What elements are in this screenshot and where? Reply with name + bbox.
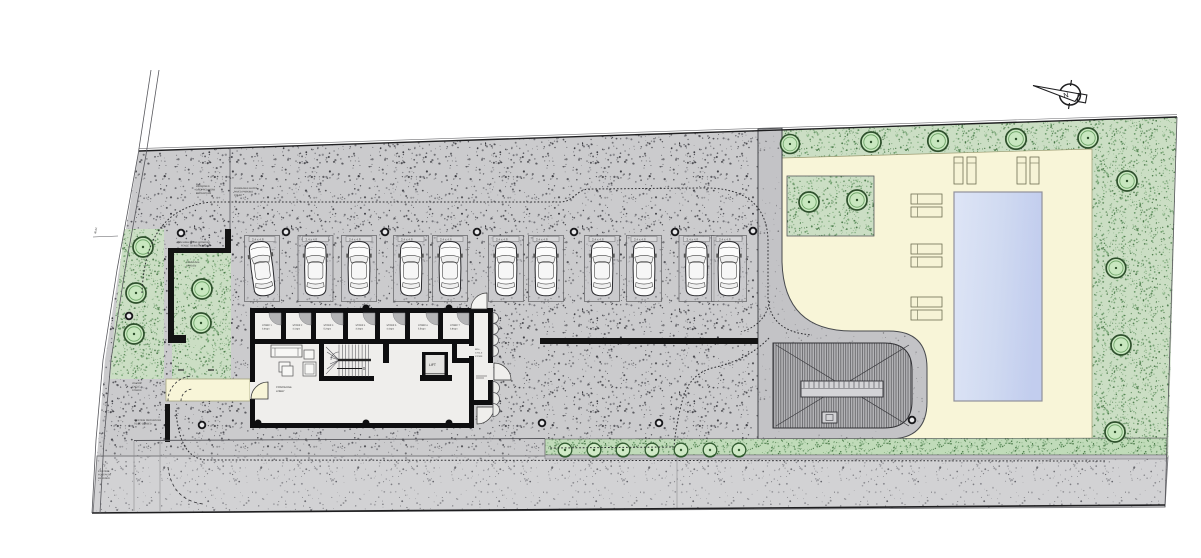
svg-text:3.6sqm: 3.6sqm <box>450 327 458 330</box>
svg-text:STORE: STORE <box>475 355 483 358</box>
svg-text:CONCIERGE: CONCIERGE <box>276 386 292 389</box>
svg-text:RETAINED: RETAINED <box>98 477 110 480</box>
svg-text:2.4 x 4.8: 2.4 x 4.8 <box>536 238 548 242</box>
svg-text:2.4 x 4.8: 2.4 x 4.8 <box>252 238 264 242</box>
svg-text:2.4 x 4.8: 2.4 x 4.8 <box>401 238 413 242</box>
svg-text:2.4 x 4.8: 2.4 x 4.8 <box>496 238 508 242</box>
svg-text:2.4 x 4.8: 2.4 x 4.8 <box>634 238 646 242</box>
svg-text:STORE 7: STORE 7 <box>450 324 461 327</box>
svg-text:GARDEN: GARDEN <box>186 265 197 268</box>
svg-text:COURT: COURT <box>234 194 243 197</box>
svg-text:2.4 x 4.8: 2.4 x 4.8 <box>687 238 699 242</box>
svg-text:5.5sqm: 5.5sqm <box>418 327 426 330</box>
svg-text:2.4 x 4.8: 2.4 x 4.8 <box>719 238 731 242</box>
svg-text:3.3sqm: 3.3sqm <box>356 327 364 330</box>
svg-text:2.4 x 4.8: 2.4 x 4.8 <box>306 238 318 242</box>
svg-text:3.0sqm: 3.0sqm <box>262 327 270 330</box>
svg-text:4.1sqm: 4.1sqm <box>293 327 301 330</box>
svg-text:STORE 5: STORE 5 <box>387 324 398 327</box>
svg-text:STORE 1: STORE 1 <box>262 324 273 327</box>
svg-text:STORE 4: STORE 4 <box>356 324 367 327</box>
svg-text:STORE 6: STORE 6 <box>418 324 429 327</box>
svg-text:2.4 x 4.8: 2.4 x 4.8 <box>440 238 452 242</box>
svg-text:CROSSOVER: CROSSOVER <box>196 192 212 195</box>
svg-text:LIFT: LIFT <box>429 363 436 367</box>
svg-text:STANDS: STANDS <box>132 389 142 392</box>
svg-text:CYCLE: CYCLE <box>475 351 483 354</box>
svg-text:TO BE CLOSED: TO BE CLOSED <box>134 423 152 426</box>
svg-text:LOBBY: LOBBY <box>276 390 285 393</box>
svg-text:BIN +: BIN + <box>475 348 481 351</box>
svg-text:STORE 3: STORE 3 <box>324 324 335 327</box>
svg-text:FENCE TO BOUNDARY: FENCE TO BOUNDARY <box>181 245 208 248</box>
svg-text:5.2sqm: 5.2sqm <box>324 327 332 330</box>
svg-text:2.4 x 4.8: 2.4 x 4.8 <box>349 238 361 242</box>
svg-text:4.4sqm: 4.4sqm <box>387 327 395 330</box>
svg-text:2.4 x 4.8: 2.4 x 4.8 <box>592 238 604 242</box>
svg-text:STORE 2: STORE 2 <box>293 324 304 327</box>
